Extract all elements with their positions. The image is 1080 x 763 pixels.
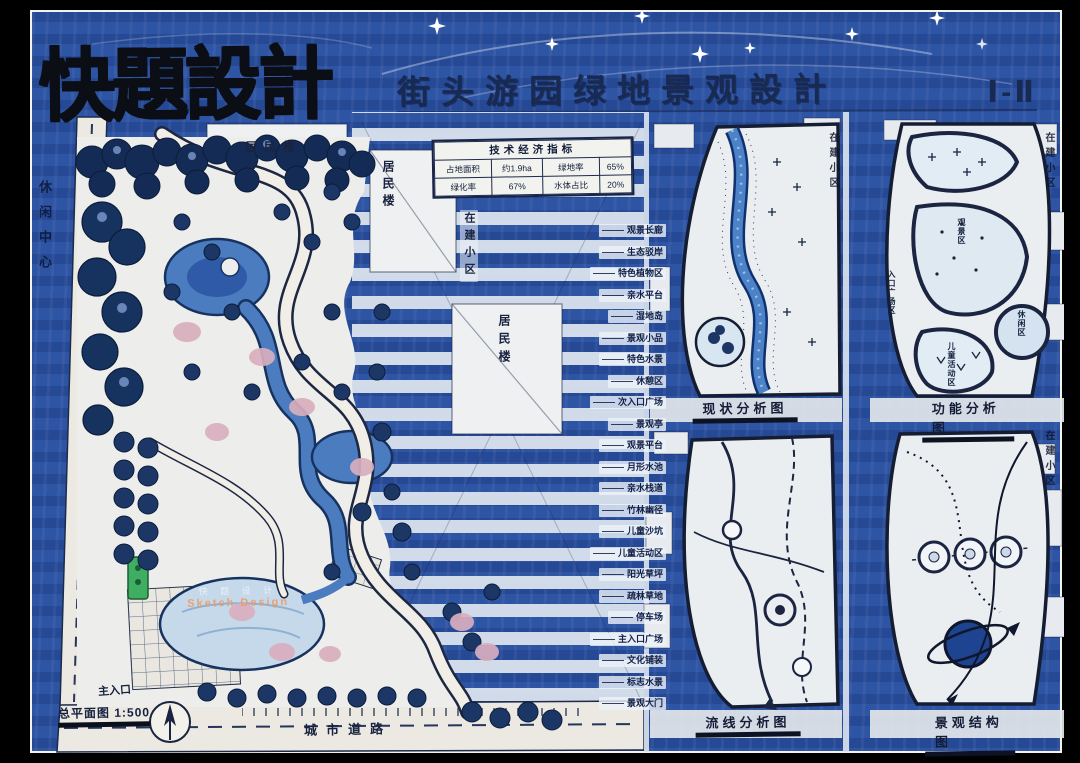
district-label-under-construction: 在建小区 — [1041, 430, 1056, 490]
function-zone-label: 儿童活动区 — [946, 342, 957, 387]
plan-annotation: 停车场 — [608, 611, 666, 624]
indicator-cell: 绿化率 — [435, 177, 492, 196]
drawing-sheet: 快題設計 街头游园绿地景观設計 Ⅰ-Ⅱ 技术经济指标 占地面积 约1.9ha 绿… — [30, 10, 1062, 753]
main-entrance-label: 主入口 — [97, 681, 131, 699]
indicator-cell: 占地面积 — [434, 159, 491, 178]
subtitle-row: 街头游园绿地景观設計 Ⅰ-Ⅱ — [397, 64, 1037, 112]
star-sparkles — [428, 12, 988, 63]
district-label-under-construction: 在建小区 — [825, 132, 840, 192]
plan-annotation-column: 观景长廊 生态驳岸 特色植物区 亲水平台 湿地岛 景观小品 特色水景 休憩区 次… — [580, 224, 666, 710]
diagram-structure — [887, 432, 1048, 706]
plan-annotation: 特色水景 — [599, 353, 666, 366]
drawing-board: 快題設計 街头游园绿地景观設計 Ⅰ-Ⅱ 技术经济指标 占地面积 约1.9ha 绿… — [0, 0, 1080, 763]
city-road-label: 城市道路 — [304, 718, 392, 739]
indicator-cell: 20% — [599, 175, 632, 194]
diagram-title-site-analysis: 现状分析图 — [692, 397, 797, 423]
diagram-circulation-analysis — [684, 436, 838, 710]
indicator-cell: 水体占比 — [542, 175, 599, 194]
plan-annotation: 儿童活动区 — [590, 547, 666, 560]
plan-annotation: 观景长廊 — [599, 224, 666, 237]
plan-annotation: 儿童沙坑 — [599, 525, 666, 538]
plan-annotation: 湿地岛 — [608, 310, 666, 323]
plan-annotation: 主入口广场 — [590, 633, 666, 646]
plan-annotation: 阳光草坪 — [599, 568, 666, 581]
plan-annotation: 特色植物区 — [590, 267, 666, 280]
plan-scale-label: 总平面图 1:500 — [58, 703, 150, 728]
district-label-under-construction: 在建小区 — [1041, 132, 1056, 192]
diagram-function-analysis — [887, 124, 1050, 396]
diagram-title-function-analysis: 功能分析图 — [922, 397, 1015, 442]
plan-annotation: 景观亭 — [608, 418, 666, 431]
plan-annotation: 生态驳岸 — [599, 246, 666, 259]
diagram-title-structure: 景观结构图 — [925, 711, 1016, 756]
indicator-cell: 绿地率 — [542, 157, 599, 176]
plan-annotation: 休憩区 — [608, 375, 666, 388]
diagram-title-circulation-analysis: 流线分析图 — [695, 711, 800, 737]
indicator-cell: 约1.9ha — [491, 158, 542, 177]
plan-annotation: 景观大门 — [599, 697, 666, 710]
function-zone-label: 入口广场区 — [886, 270, 897, 315]
plan-annotation: 亲水栈道 — [599, 482, 666, 495]
plan-annotation: 亲水平台 — [599, 289, 666, 302]
indicator-cell: 65% — [599, 157, 632, 176]
plan-annotation: 文化铺装 — [599, 654, 666, 667]
plan-annotation: 竹林幽径 — [599, 504, 666, 517]
indicator-table: 技术经济指标 占地面积 约1.9ha 绿地率 65% 绿化率 67% 水体占比 … — [434, 138, 633, 196]
plan-annotation: 疏林草地 — [599, 590, 666, 603]
leisure-center-label: 休闲中心 — [35, 180, 54, 280]
function-zone-label: 休闲区 — [1016, 310, 1027, 337]
building-label-residential-mid: 居民楼 — [380, 160, 397, 211]
sheet-number: Ⅰ-Ⅱ — [987, 75, 1037, 110]
building-label-residential-north: 居民楼 — [245, 138, 302, 155]
watermark: 快 题 设 计 Sketch Design — [158, 583, 318, 611]
north-arrow — [150, 702, 190, 742]
diagram-site-analysis — [682, 124, 840, 396]
sheet-subtitle: 街头游园绿地景观設計 — [397, 62, 837, 113]
function-zone-label: 观景区 — [956, 218, 967, 245]
plan-annotation: 观景平台 — [599, 439, 666, 452]
indicator-cell: 67% — [492, 176, 543, 195]
plan-annotation: 标志水景 — [599, 676, 666, 689]
district-label-under-construction: 在建小区 — [460, 210, 478, 282]
building-label-residential-south: 居民楼 — [496, 314, 513, 368]
plan-annotation: 景观小品 — [599, 332, 666, 345]
plan-annotation: 次入口广场 — [590, 396, 666, 409]
plan-annotation: 月形水池 — [599, 461, 666, 474]
main-title: 快題設計 — [37, 18, 330, 135]
